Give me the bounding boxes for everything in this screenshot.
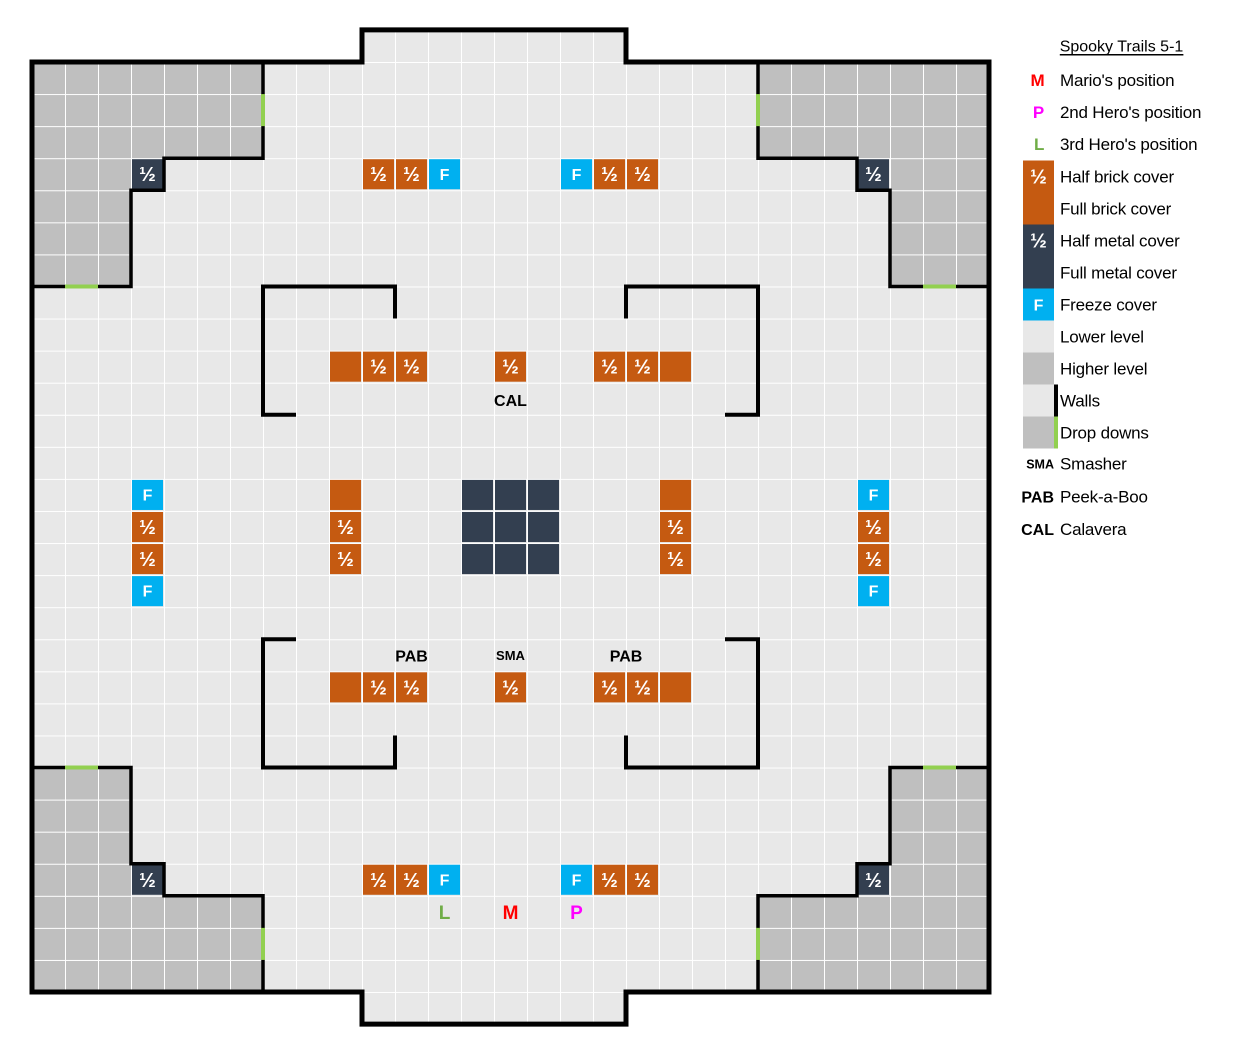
svg-text:½: ½ bbox=[337, 517, 354, 539]
svg-text:½: ½ bbox=[634, 164, 651, 186]
svg-text:½: ½ bbox=[403, 357, 420, 379]
svg-text:2nd Hero's position: 2nd Hero's position bbox=[1060, 103, 1201, 122]
svg-text:PAB: PAB bbox=[610, 649, 643, 666]
svg-text:½: ½ bbox=[1030, 167, 1047, 189]
svg-text:Drop downs: Drop downs bbox=[1060, 424, 1149, 443]
svg-text:½: ½ bbox=[667, 549, 684, 571]
svg-text:Full brick cover: Full brick cover bbox=[1060, 200, 1172, 219]
svg-text:½: ½ bbox=[139, 517, 156, 539]
svg-text:½: ½ bbox=[403, 677, 420, 699]
svg-text:½: ½ bbox=[634, 870, 651, 892]
svg-text:Lower level: Lower level bbox=[1060, 328, 1144, 347]
svg-text:Calavera: Calavera bbox=[1060, 520, 1127, 539]
svg-text:Half metal cover: Half metal cover bbox=[1060, 232, 1180, 251]
svg-text:P: P bbox=[1033, 103, 1044, 122]
svg-text:½: ½ bbox=[865, 549, 882, 571]
svg-text:3rd Hero's position: 3rd Hero's position bbox=[1060, 135, 1197, 154]
svg-text:½: ½ bbox=[634, 677, 651, 699]
svg-text:½: ½ bbox=[403, 164, 420, 186]
svg-text:F: F bbox=[572, 872, 582, 889]
svg-text:F: F bbox=[143, 488, 153, 505]
svg-text:½: ½ bbox=[502, 357, 519, 379]
svg-text:½: ½ bbox=[865, 517, 882, 539]
svg-text:Full metal cover: Full metal cover bbox=[1060, 264, 1177, 283]
svg-text:Walls: Walls bbox=[1060, 392, 1100, 411]
svg-text:PAB: PAB bbox=[1021, 489, 1054, 506]
svg-text:Freeze cover: Freeze cover bbox=[1060, 296, 1157, 315]
svg-text:Higher level: Higher level bbox=[1060, 360, 1147, 379]
svg-text:Smasher: Smasher bbox=[1060, 455, 1127, 474]
svg-text:½: ½ bbox=[370, 677, 387, 699]
svg-text:½: ½ bbox=[601, 870, 618, 892]
svg-text:F: F bbox=[869, 584, 879, 601]
svg-text:½: ½ bbox=[139, 870, 156, 892]
svg-text:½: ½ bbox=[634, 357, 651, 379]
svg-text:Mario's position: Mario's position bbox=[1060, 71, 1174, 90]
svg-text:½: ½ bbox=[601, 357, 618, 379]
svg-text:M: M bbox=[1031, 71, 1045, 90]
svg-text:½: ½ bbox=[865, 870, 882, 892]
svg-text:½: ½ bbox=[370, 164, 387, 186]
svg-text:½: ½ bbox=[370, 357, 387, 379]
svg-text:F: F bbox=[1034, 298, 1044, 315]
svg-text:½: ½ bbox=[601, 164, 618, 186]
svg-text:½: ½ bbox=[502, 677, 519, 699]
svg-text:½: ½ bbox=[667, 517, 684, 539]
svg-text:F: F bbox=[572, 167, 582, 184]
svg-text:½: ½ bbox=[403, 870, 420, 892]
svg-text:½: ½ bbox=[139, 164, 156, 186]
svg-text:½: ½ bbox=[601, 677, 618, 699]
svg-text:½: ½ bbox=[1030, 231, 1047, 253]
svg-text:Half brick cover: Half brick cover bbox=[1060, 168, 1174, 187]
svg-text:½: ½ bbox=[370, 870, 387, 892]
svg-text:L: L bbox=[439, 903, 451, 924]
svg-text:½: ½ bbox=[337, 549, 354, 571]
svg-text:F: F bbox=[440, 167, 450, 184]
svg-text:F: F bbox=[440, 872, 450, 889]
svg-text:Peek-a-Boo: Peek-a-Boo bbox=[1060, 487, 1148, 506]
svg-text:L: L bbox=[1034, 135, 1044, 154]
svg-text:P: P bbox=[570, 903, 583, 924]
svg-text:SMA: SMA bbox=[496, 648, 526, 663]
svg-text:Spooky Trails 5-1: Spooky Trails 5-1 bbox=[1060, 39, 1184, 56]
svg-text:½: ½ bbox=[139, 549, 156, 571]
svg-text:PAB: PAB bbox=[395, 649, 428, 666]
svg-text:M: M bbox=[503, 903, 519, 924]
svg-text:SMA: SMA bbox=[1026, 458, 1054, 472]
svg-text:F: F bbox=[143, 584, 153, 601]
svg-text:F: F bbox=[869, 488, 879, 505]
svg-text:½: ½ bbox=[865, 164, 882, 186]
svg-text:CAL: CAL bbox=[1021, 522, 1054, 539]
svg-text:CAL: CAL bbox=[494, 393, 527, 410]
